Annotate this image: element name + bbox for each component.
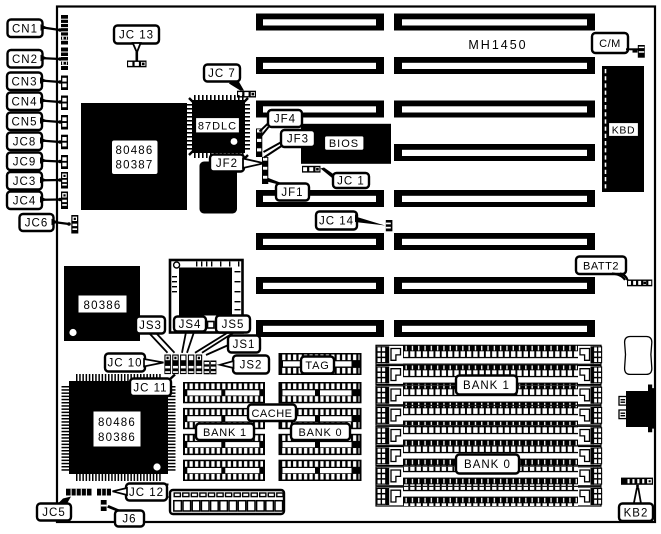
svg-text:JC5: JC5 [42,507,65,519]
svg-text:TAG: TAG [305,360,329,372]
svg-text:80486: 80486 [116,145,154,157]
svg-text:CN2: CN2 [12,54,38,66]
svg-text:CN1: CN1 [12,23,38,35]
svg-text:BANK 1: BANK 1 [203,427,247,439]
svg-text:JF1: JF1 [281,187,303,199]
svg-text:JC 12: JC 12 [129,487,164,499]
svg-text:JC8: JC8 [13,136,36,148]
svg-text:80386: 80386 [84,300,122,312]
svg-text:JC 11: JC 11 [133,382,167,394]
svg-text:80486: 80486 [98,417,136,429]
svg-text:CACHE: CACHE [251,408,292,420]
svg-text:JF4: JF4 [274,114,296,126]
svg-text:BANK 0: BANK 0 [464,459,511,471]
svg-text:87DLC: 87DLC [198,121,237,133]
svg-text:JC 14: JC 14 [319,216,354,228]
svg-text:CN3: CN3 [11,76,37,88]
svg-text:CN5: CN5 [11,116,37,128]
svg-text:JS4: JS4 [179,319,202,331]
svg-text:JS3: JS3 [139,320,162,332]
svg-text:JC 7: JC 7 [208,68,236,80]
svg-text:JC3: JC3 [13,176,36,188]
svg-text:JF2: JF2 [216,158,238,170]
svg-text:JC 10: JC 10 [107,358,142,370]
svg-text:JC9: JC9 [13,156,36,168]
svg-text:JC6: JC6 [25,218,48,230]
svg-text:80387: 80387 [116,160,154,172]
svg-text:JS5: JS5 [222,319,245,331]
svg-text:MH1450: MH1450 [468,38,527,52]
svg-text:JS1: JS1 [233,339,256,351]
svg-text:J6: J6 [122,514,136,526]
svg-text:80386: 80386 [98,432,136,444]
svg-text:BATT2: BATT2 [583,260,619,272]
svg-text:C/M: C/M [599,38,621,50]
svg-text:JC4: JC4 [13,195,36,207]
svg-text:CN4: CN4 [11,96,37,108]
svg-text:JF3: JF3 [287,134,309,146]
svg-text:KB2: KB2 [624,507,649,519]
svg-text:JC 13: JC 13 [119,30,154,42]
svg-text:JS2: JS2 [240,360,263,372]
svg-text:JC 1: JC 1 [337,176,365,188]
svg-text:BANK 1: BANK 1 [463,380,510,392]
svg-text:BIOS: BIOS [329,138,359,150]
svg-text:BANK 0: BANK 0 [299,427,343,439]
svg-text:KBD: KBD [612,125,635,137]
